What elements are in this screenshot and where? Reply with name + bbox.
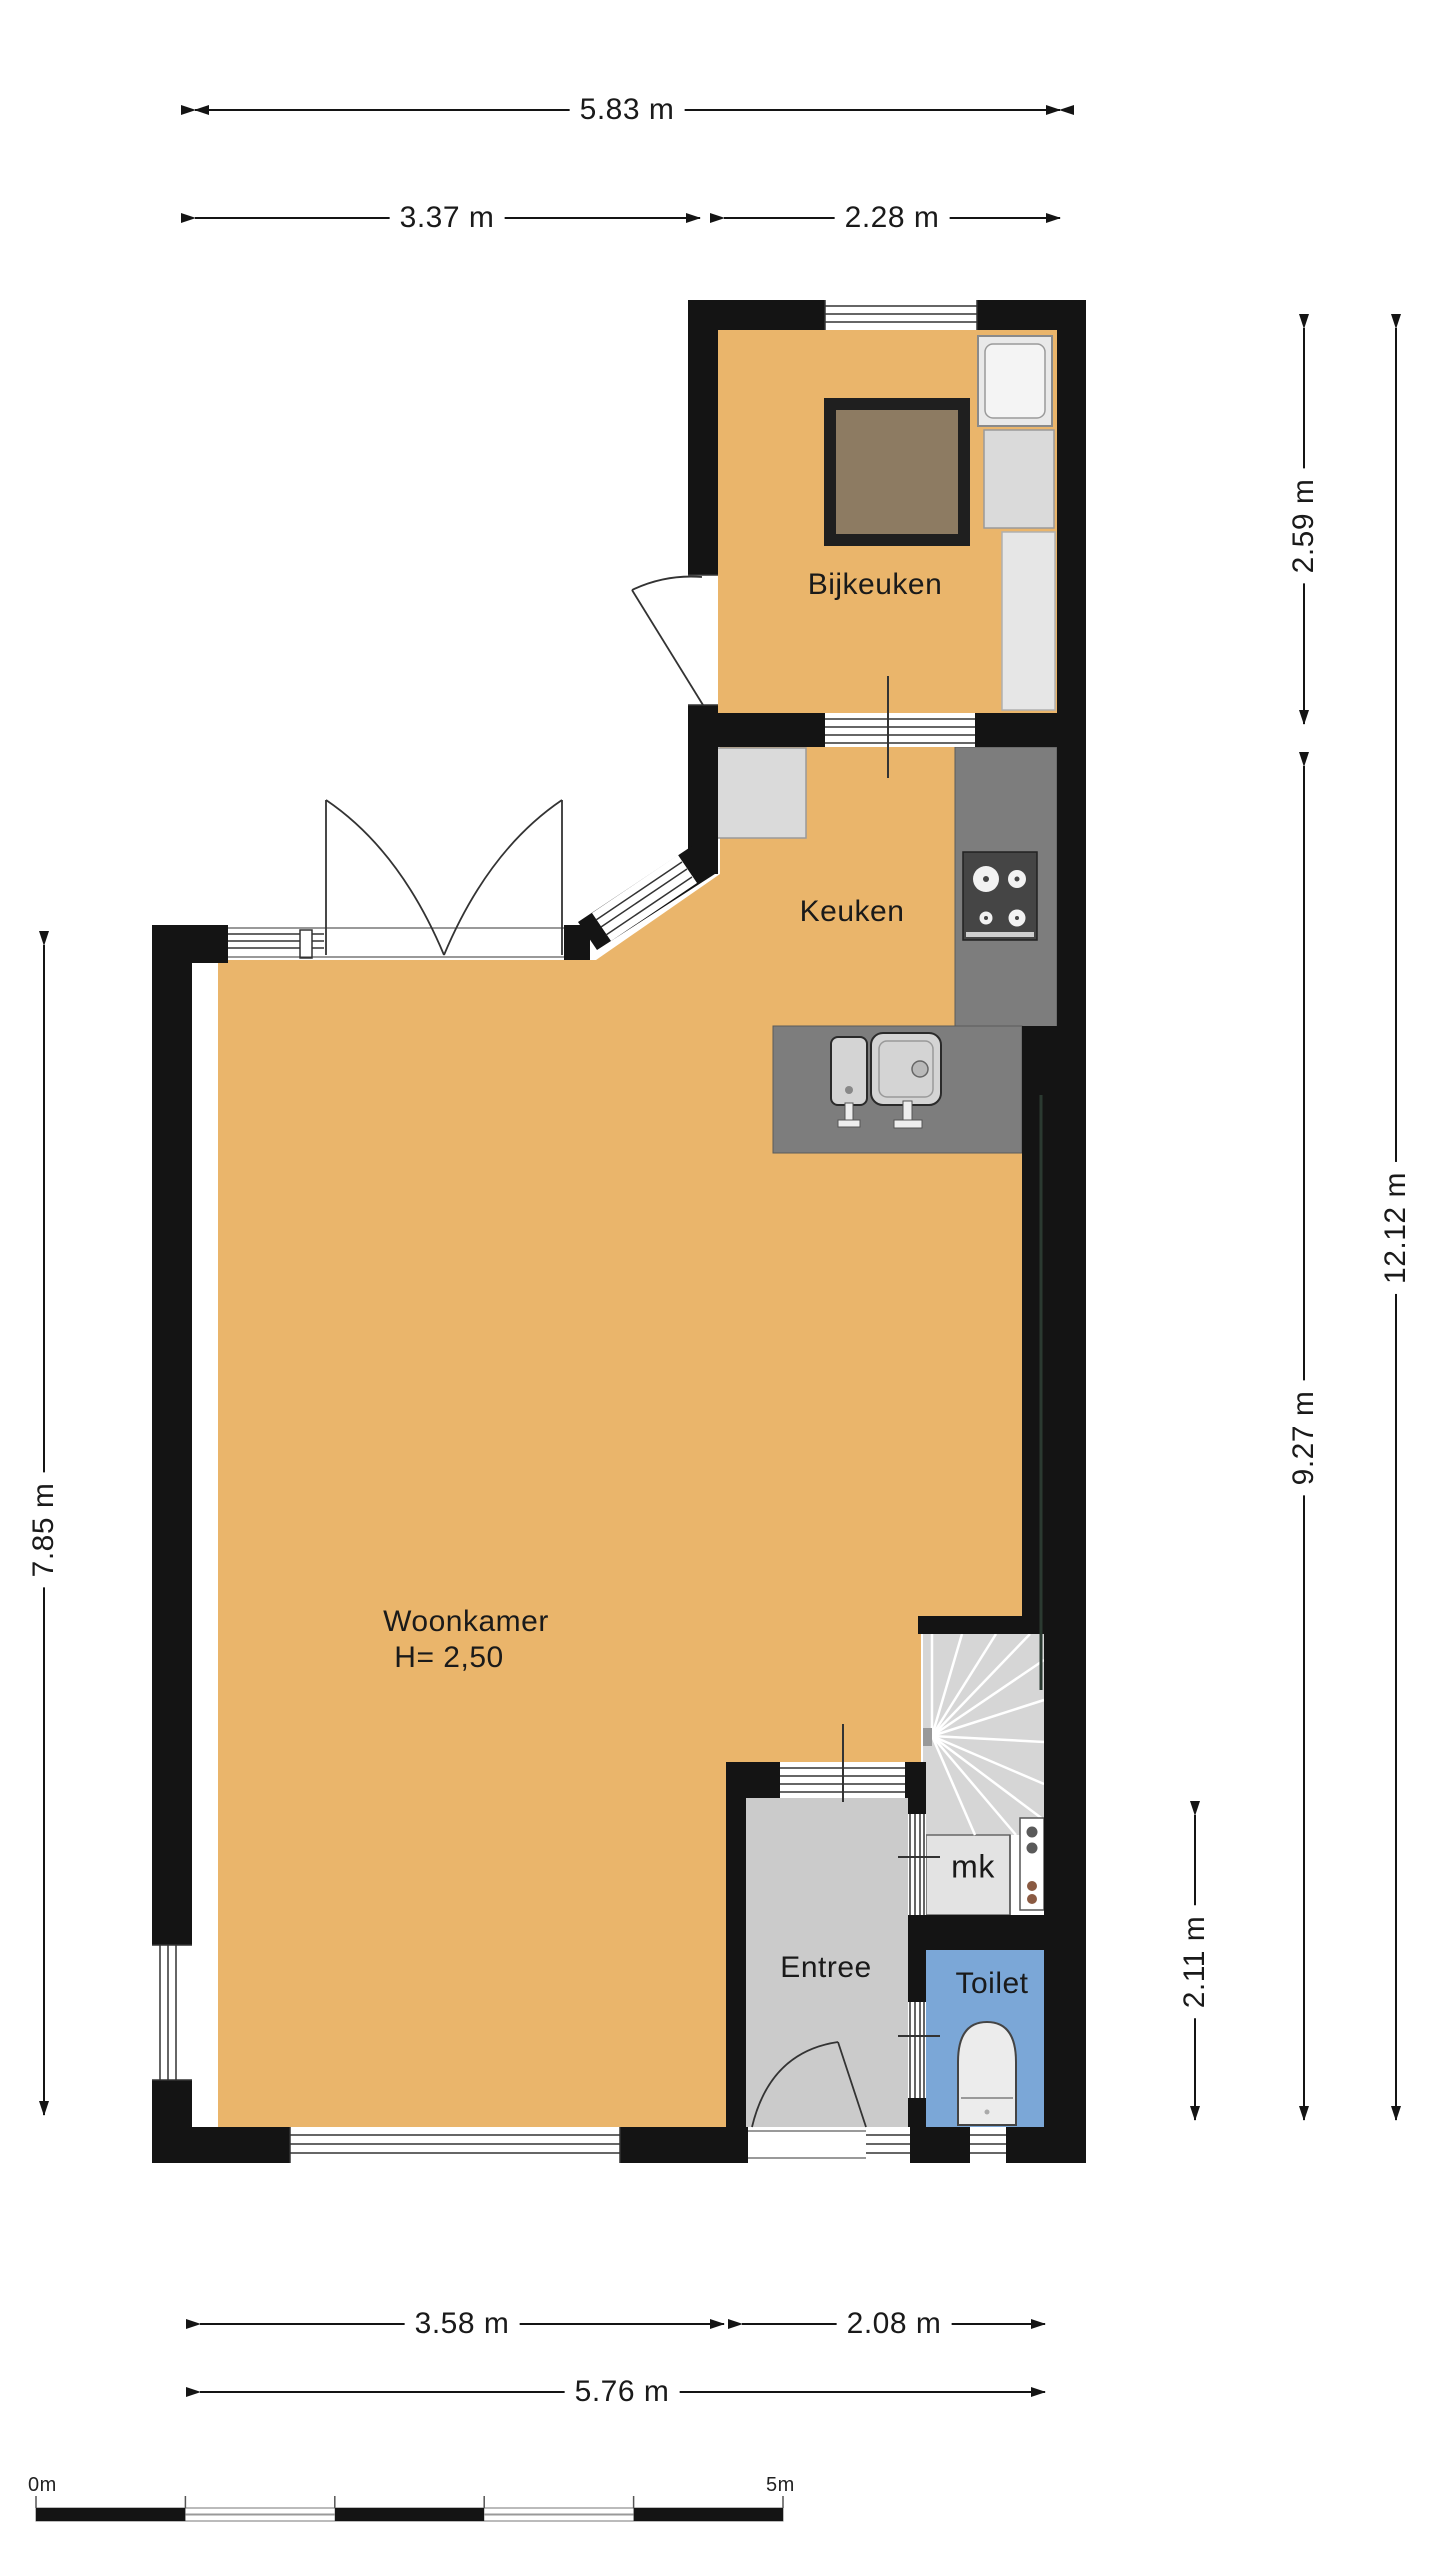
- faucet-small-bar: [838, 1120, 860, 1127]
- burner-2-center: [1015, 877, 1020, 882]
- burner-3-center: [984, 916, 988, 920]
- scale-seg-1: [36, 2508, 185, 2521]
- dim-label-right-bijkeuken: 2.59 m: [1285, 469, 1323, 584]
- meter-dot-2: [1027, 1843, 1038, 1854]
- burner-1-center: [983, 876, 989, 882]
- room-label-toilet: Toilet: [955, 1967, 1028, 2001]
- wall-bottom-4: [1006, 2127, 1086, 2163]
- scale-bar: [36, 2496, 783, 2521]
- wall-entree-left: [726, 1762, 746, 2127]
- sink-large-drain: [912, 1061, 928, 1077]
- wall-stairs-stub: [918, 1616, 1044, 1634]
- faucet-large-bar: [894, 1120, 922, 1128]
- room-label-woonkamer-height: H= 2,50: [394, 1641, 503, 1675]
- door-opening-bijkeuken: [688, 575, 718, 705]
- wall-bottom-1: [152, 2127, 290, 2163]
- meter-dot-4: [1027, 1894, 1037, 1904]
- washer-top: [985, 344, 1045, 418]
- sink-small: [831, 1037, 867, 1105]
- wall-step: [1022, 1026, 1086, 1081]
- meter-dot-3: [1027, 1881, 1037, 1891]
- opening-bijkeuken-keuken: [825, 713, 975, 747]
- floorplan-drawing: [0, 0, 1440, 2560]
- dim-label-right-lower: 9.27 m: [1285, 1381, 1323, 1496]
- scale-seg-3: [335, 2508, 484, 2521]
- sink-small-drain: [845, 1086, 853, 1094]
- wall-right-lower: [1044, 1616, 1086, 2163]
- stairs-newel: [923, 1728, 932, 1746]
- wall-right-mid: [1022, 1076, 1086, 1616]
- dim-label-bottom-right: 2.08 m: [837, 2305, 952, 2343]
- stove-controls: [966, 932, 1034, 937]
- room-label-bijkeuken: Bijkeuken: [808, 568, 943, 602]
- window-bottom-toilet: [970, 2127, 1006, 2163]
- scale-label-end: 5m: [766, 2474, 795, 2497]
- room-label-keuken: Keuken: [800, 895, 905, 929]
- scale-ticks: [36, 2496, 783, 2508]
- fridge: [716, 748, 806, 838]
- dim-label-top-left: 3.37 m: [390, 199, 505, 237]
- wall-bottom-3: [910, 2127, 970, 2163]
- dim-label-bottom-left: 3.58 m: [405, 2305, 520, 2343]
- window-bijkeuken-top: [825, 300, 977, 330]
- bijkeuken-counter: [1002, 532, 1055, 710]
- dim-label-top-right: 2.28 m: [835, 199, 950, 237]
- wall-divider-left: [688, 713, 825, 747]
- wall-left-bijkeuken-upper: [688, 330, 718, 575]
- wall-partition-stub-2: [908, 1915, 926, 2002]
- dim-label-top-total: 5.83 m: [570, 91, 685, 129]
- dim-label-bottom-total: 5.76 m: [565, 2373, 680, 2411]
- scale-label-start: 0m: [28, 2474, 57, 2497]
- wall-mk-toilet: [926, 1915, 1086, 1950]
- wall-partition-stub-3: [908, 2098, 926, 2127]
- window-bottom-large: [290, 2127, 620, 2163]
- room-label-woonkamer: Woonkamer: [383, 1605, 549, 1639]
- dim-label-right-total: 12.12 m: [1377, 1162, 1415, 1294]
- wall-left: [152, 925, 192, 1945]
- toilet-flush: [985, 2110, 990, 2115]
- dryer: [984, 430, 1054, 528]
- scale-seg-5: [634, 2508, 783, 2521]
- wall-partition-stub-1: [908, 1762, 926, 1814]
- window-left: [152, 1945, 192, 2080]
- window-bottom-entree: [866, 2127, 910, 2163]
- dim-label-right-hall: 2.11 m: [1176, 1906, 1214, 2019]
- table: [836, 410, 958, 534]
- wall-top-left: [688, 300, 825, 330]
- room-label-mk: mk: [951, 1849, 995, 1886]
- floorplan-page: 5.83 m 3.37 m 2.28 m 2.59 m 12.12 m 9.27…: [0, 0, 1440, 2560]
- wall-woonkamer-top-right: [564, 925, 590, 960]
- french-door-arc-left: [326, 800, 444, 955]
- room-label-entree: Entree: [780, 1951, 871, 1985]
- dim-label-left: 7.85 m: [25, 1473, 63, 1588]
- meter-dot-1: [1027, 1827, 1038, 1838]
- stove: [963, 852, 1037, 940]
- wall-divider-right: [975, 713, 1086, 747]
- wall-entree-top-stub: [726, 1762, 780, 1798]
- wall-bottom-2: [620, 2127, 748, 2163]
- burner-4-center: [1015, 916, 1019, 920]
- wall-right-upper: [1057, 300, 1086, 1076]
- window-mullion: [300, 930, 312, 958]
- french-door-arc-right: [444, 800, 562, 955]
